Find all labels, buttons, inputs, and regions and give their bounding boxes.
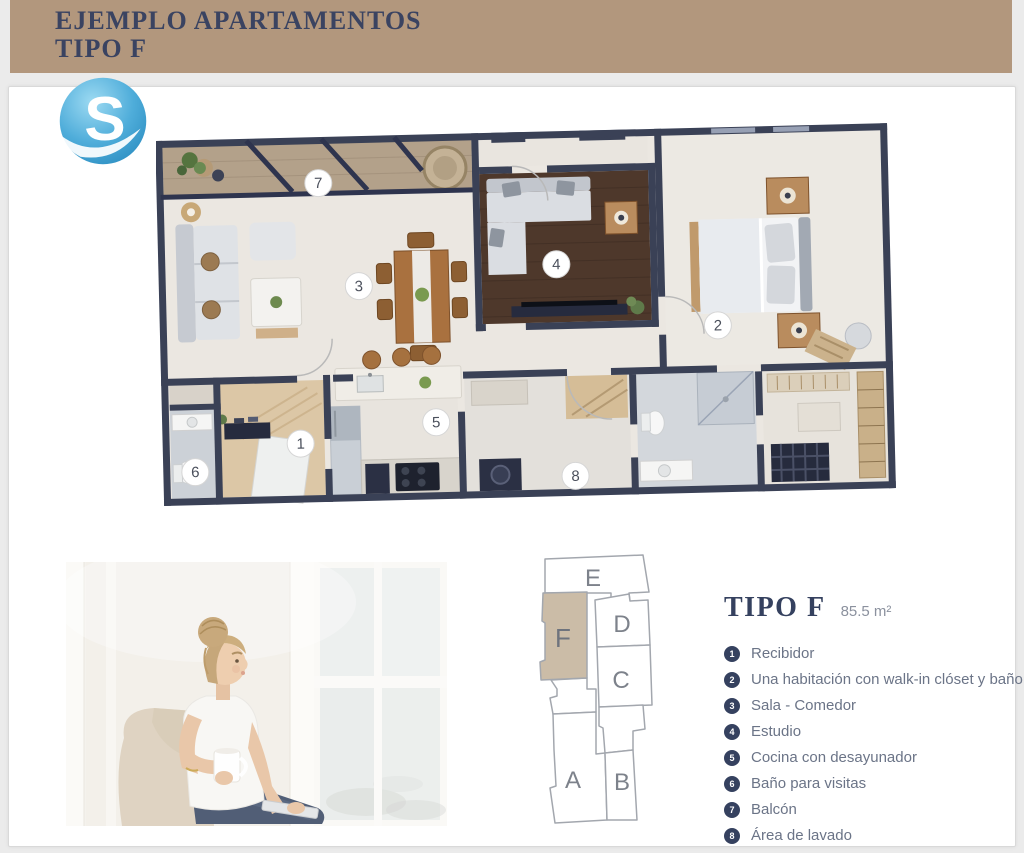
unit-label-c: C xyxy=(612,667,629,694)
unit-area: 85.5 m² xyxy=(841,603,892,620)
legend-item: 6 Baño para visitas xyxy=(724,775,1016,792)
svg-text:1: 1 xyxy=(296,435,305,452)
page-title-line1: EJEMPLO APARTAMENTOS xyxy=(55,7,1012,35)
legend-number-badge: 3 xyxy=(724,698,740,714)
svg-text:3: 3 xyxy=(354,278,363,295)
room-marker-4: 4 xyxy=(543,250,571,278)
legend-number-badge: 2 xyxy=(724,672,740,688)
room-legend: 1 Recibidor 2 Una habitación con walk-in… xyxy=(724,645,1016,844)
room-marker-3: 3 xyxy=(345,272,373,300)
legend-item: 2 Una habitación con walk-in clóset y ba… xyxy=(724,671,1016,688)
legend-number-badge: 6 xyxy=(724,776,740,792)
legend-label: Cocina con desayunador xyxy=(751,749,917,766)
unit-info: TIPO F 85.5 m² 1 Recibidor 2 Una habitac… xyxy=(724,592,1016,853)
brochure-page: EJEMPLO APARTAMENTOS TIPO F S xyxy=(0,0,1024,847)
svg-text:5: 5 xyxy=(432,414,441,431)
legend-number-badge: 1 xyxy=(724,646,740,662)
legend-number-badge: 4 xyxy=(724,724,740,740)
unit-label-e: E xyxy=(585,565,601,592)
svg-text:2: 2 xyxy=(714,317,723,334)
legend-label: Balcón xyxy=(751,801,797,818)
legend-item: 5 Cocina con desayunador xyxy=(724,749,1016,766)
company-logo: S xyxy=(56,74,150,164)
legend-item: 1 Recibidor xyxy=(724,645,1016,662)
logo-sphere-icon: S xyxy=(56,74,150,168)
room-marker-7: 7 xyxy=(304,169,332,197)
room-marker-5: 5 xyxy=(422,408,450,436)
unit-type-title: TIPO F xyxy=(724,592,826,624)
logo-letter: S xyxy=(84,85,125,154)
legend-number-badge: 5 xyxy=(724,750,740,766)
room-marker-2: 2 xyxy=(704,312,732,340)
legend-number-badge: 7 xyxy=(724,802,740,818)
floor-plan-3d: 12345678 xyxy=(156,120,900,544)
room-marker-6: 6 xyxy=(181,458,209,486)
legend-label: Recibidor xyxy=(751,645,814,662)
header-bar: EJEMPLO APARTAMENTOS TIPO F xyxy=(10,0,1012,73)
unit-label-f: F xyxy=(555,623,571,653)
svg-text:4: 4 xyxy=(552,256,561,273)
core-shape xyxy=(550,678,596,714)
legend-label: Una habitación con walk-in clóset y baño xyxy=(751,671,1023,688)
page-title: EJEMPLO APARTAMENTOS TIPO F xyxy=(10,0,1012,63)
legend-item: 7 Balcón xyxy=(724,801,1016,818)
service-area-shape xyxy=(599,705,645,753)
legend-number-badge: 8 xyxy=(724,828,740,844)
legend-item: 4 Estudio xyxy=(724,723,1016,740)
legend-label: Estudio xyxy=(751,723,801,740)
page-title-line2: TIPO F xyxy=(55,35,1012,63)
unit-info-header: TIPO F 85.5 m² xyxy=(724,592,1016,624)
unit-label-a: A xyxy=(565,767,581,794)
legend-label: Sala - Comedor xyxy=(751,697,856,714)
unit-label-b: B xyxy=(614,769,630,796)
svg-text:6: 6 xyxy=(191,464,200,481)
building-key-plan: E F D C A B xyxy=(533,548,705,830)
lifestyle-photo xyxy=(66,562,447,826)
legend-label: Área de lavado xyxy=(751,827,852,844)
legend-item: 3 Sala - Comedor xyxy=(724,697,1016,714)
room-marker-8: 8 xyxy=(562,462,590,490)
legend-label: Baño para visitas xyxy=(751,775,866,792)
svg-text:7: 7 xyxy=(314,175,323,192)
legend-item: 8 Área de lavado xyxy=(724,827,1016,844)
unit-label-d: D xyxy=(613,611,630,638)
room-marker-1: 1 xyxy=(287,430,315,458)
svg-text:8: 8 xyxy=(571,468,580,485)
